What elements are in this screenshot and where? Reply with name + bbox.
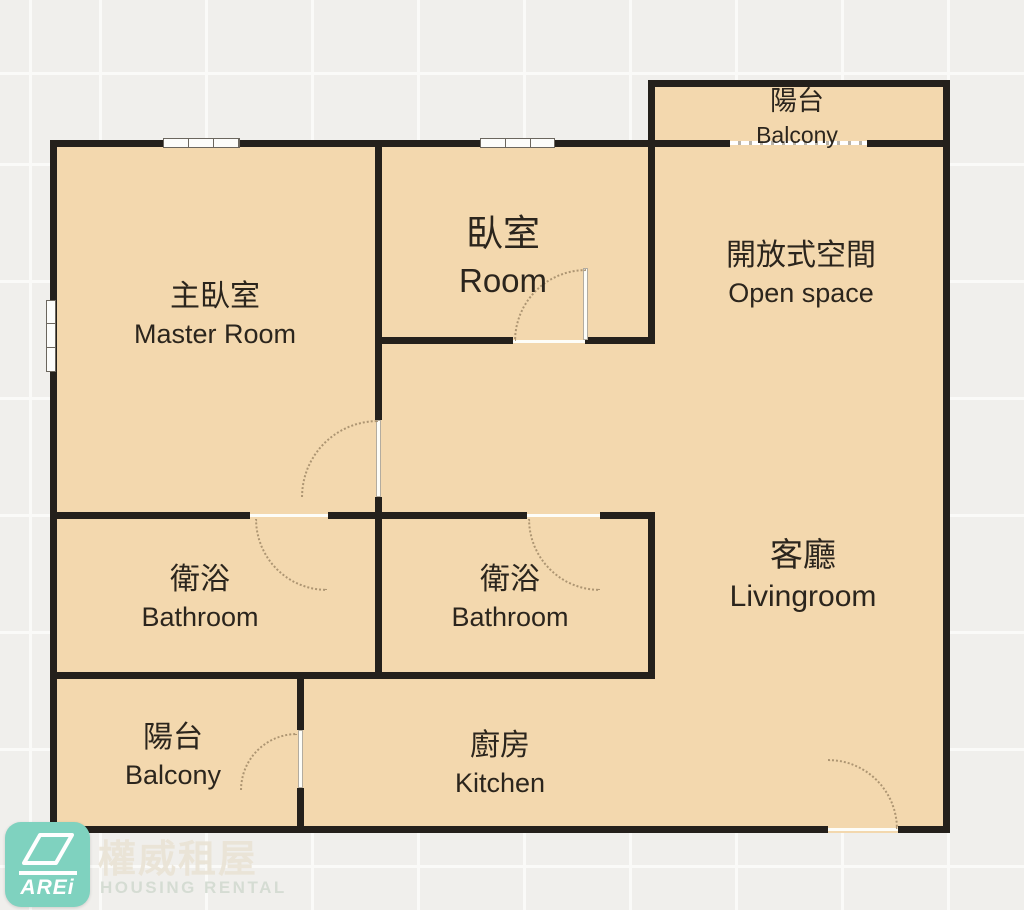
wall-bedroom-right [648, 140, 655, 344]
logo-badge: AREi [5, 822, 90, 907]
door-leaf-balcony-bottom [298, 730, 303, 788]
livingroom-label-cjk: 客廳 [730, 533, 877, 577]
wall-outer-left [50, 140, 57, 833]
logo-divider [19, 871, 77, 875]
watermark-en: HOUSING RENTAL [100, 878, 287, 898]
balcony-bottom-label: 陽台 Balcony [125, 718, 221, 793]
livingroom-label: 客廳 Livingroom [730, 533, 877, 616]
master-room-label-cjk: 主臥室 [134, 277, 296, 317]
wall-outer-right [943, 140, 950, 833]
bathroom-mid-label-cjk: 衛浴 [451, 560, 568, 600]
door-threshold-bathroom-left [250, 514, 328, 517]
balcony-bottom-label-cjk: 陽台 [125, 718, 221, 758]
open-space-label: 開放式空間 Open space [726, 236, 876, 311]
bathroom-left-label-en: Bathroom [141, 600, 258, 636]
bathroom-mid-label: 衛浴 Bathroom [451, 560, 568, 635]
watermark-cjk: 權威租屋 [98, 828, 258, 883]
bathroom-mid-label-en: Bathroom [451, 600, 568, 636]
kitchen-label-en: Kitchen [455, 766, 545, 802]
window-left [46, 300, 56, 372]
wall-bathrooms-mid [375, 512, 382, 679]
master-room-label: 主臥室 Master Room [134, 277, 296, 352]
wall-balcony-right [943, 80, 950, 147]
wall-bathroom2-right [648, 512, 655, 679]
bedroom-label: 臥室 Room [459, 210, 547, 302]
kitchen-label: 廚房 Kitchen [455, 726, 545, 801]
open-space-label-en: Open space [726, 276, 876, 312]
bathroom-left-label: 衛浴 Bathroom [141, 560, 258, 635]
master-room-label-en: Master Room [134, 317, 296, 353]
balcony-top-label-cjk: 陽台 [756, 84, 838, 120]
balcony-top-label: 陽台 Balcony [756, 84, 838, 150]
balcony-bottom-label-en: Balcony [125, 758, 221, 794]
window-top-mid [480, 138, 555, 148]
wall-bathrooms-bottom [50, 672, 655, 679]
door-threshold-bathroom-mid [527, 514, 600, 517]
bathroom-left-label-cjk: 衛浴 [141, 560, 258, 600]
window-top-left [163, 138, 240, 148]
balcony-top-label-en: Balcony [756, 120, 838, 150]
floorplan: 陽台 Balcony 開放式空間 Open space 主臥室 Master R… [0, 0, 1024, 910]
open-space-label-cjk: 開放式空間 [726, 236, 876, 276]
kitchen-label-cjk: 廚房 [455, 726, 545, 766]
bedroom-label-cjk: 臥室 [459, 210, 547, 259]
livingroom-label-en: Livingroom [730, 577, 877, 617]
bedroom-label-en: Room [459, 259, 547, 303]
wall-balcony-left [648, 80, 655, 147]
logo-text: AREi [20, 876, 74, 900]
roof-icon [20, 829, 76, 869]
